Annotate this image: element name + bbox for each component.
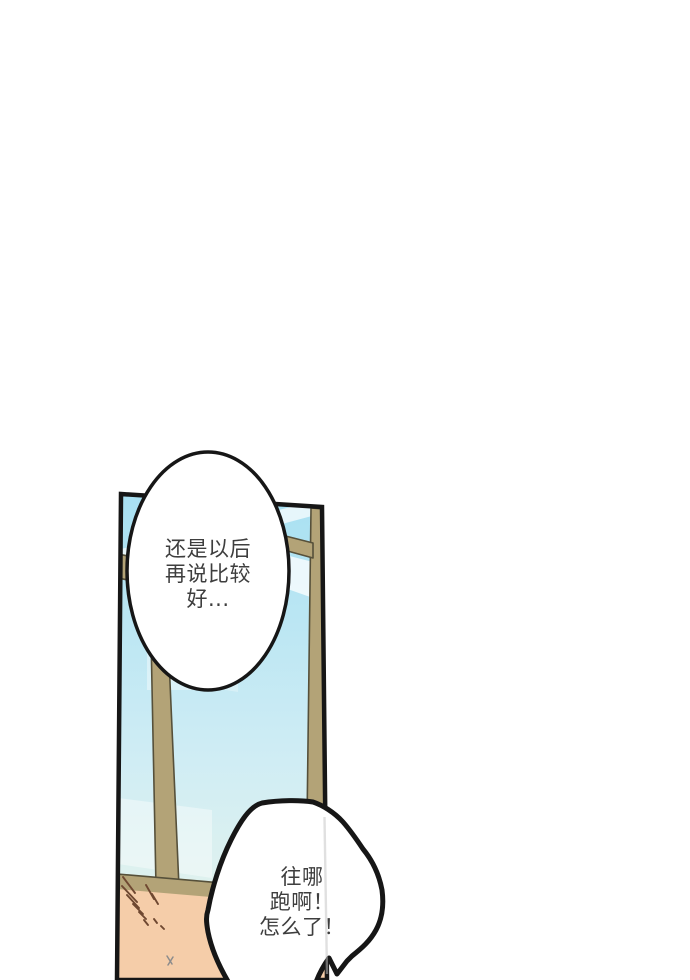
- speech-line: 跑啊！: [202, 890, 402, 915]
- speech-line: 再说比较: [108, 562, 308, 587]
- speech-bubble-top-text: 还是以后 再说比较 好...: [108, 537, 308, 612]
- comic-artwork: [0, 0, 690, 980]
- speech-bubble-bottom-text: 往哪 跑啊！ 怎么了！: [202, 865, 402, 940]
- speech-line: 怎么了！: [202, 915, 402, 940]
- speech-line: 好...: [108, 587, 308, 612]
- comic-page: { "bubbles": { "top": { "lines": ["还是以后"…: [0, 0, 690, 980]
- speech-line: 往哪: [202, 865, 402, 890]
- speech-line: 还是以后: [108, 537, 308, 562]
